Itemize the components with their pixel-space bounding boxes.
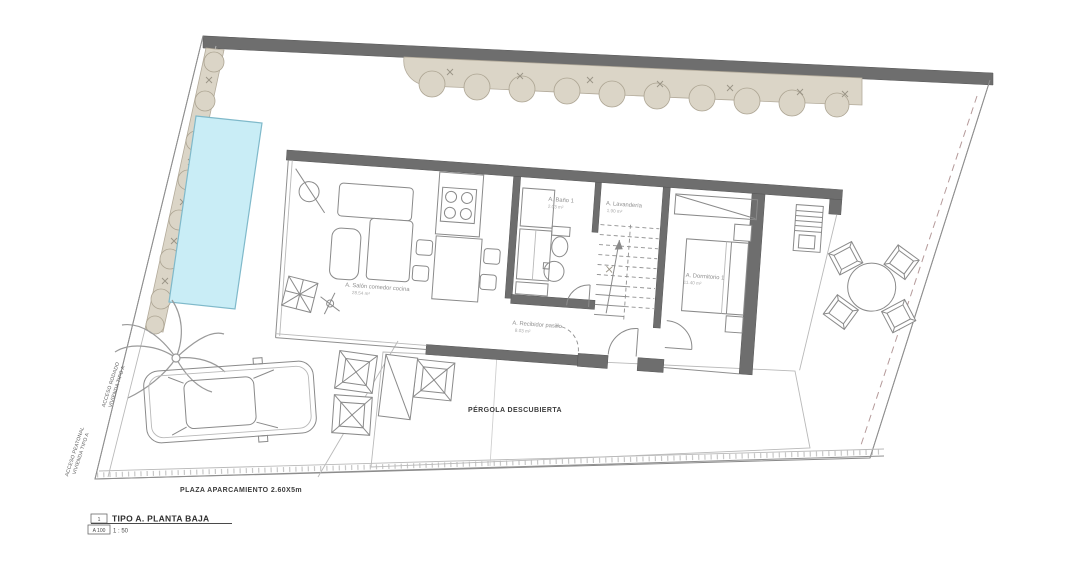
- floor-plan-drawing: A. Salón comedor cocina 28.54 m² A. Baño…: [0, 0, 1080, 565]
- sofa-top: [337, 183, 413, 221]
- pergola-label: PÉRGOLA DESCUBIERTA: [468, 405, 562, 414]
- outdoor-table: [378, 354, 417, 419]
- wall-entry-pier-right: [637, 358, 664, 373]
- drawing-title: TIPO A. PLANTA BAJA: [112, 514, 209, 524]
- sheet-number: 1: [98, 517, 101, 523]
- nightstand: [725, 316, 743, 333]
- nightstand: [734, 224, 752, 241]
- wall-top-right-stub: [829, 199, 842, 215]
- wall-entry-pier-left: [577, 353, 608, 368]
- drawing-scale: 1 : 50: [113, 529, 129, 535]
- parking-label: PLAZA APARCAMIENTO 2.60X5m: [180, 487, 302, 494]
- title-block: 1 TIPO A. PLANTA BAJA A 100 1 : 50: [88, 514, 232, 535]
- coffee-table: [329, 227, 362, 280]
- floor-plan-page: A. Salón comedor cocina 28.54 m² A. Baño…: [0, 0, 1080, 565]
- sofa-chaise: [366, 218, 413, 282]
- sheet-code: A 100: [93, 528, 106, 534]
- access-pedestrian-label: ACCESO PEATONAL VIVIENDA TIPO A: [64, 426, 92, 479]
- dining-table: [432, 236, 482, 302]
